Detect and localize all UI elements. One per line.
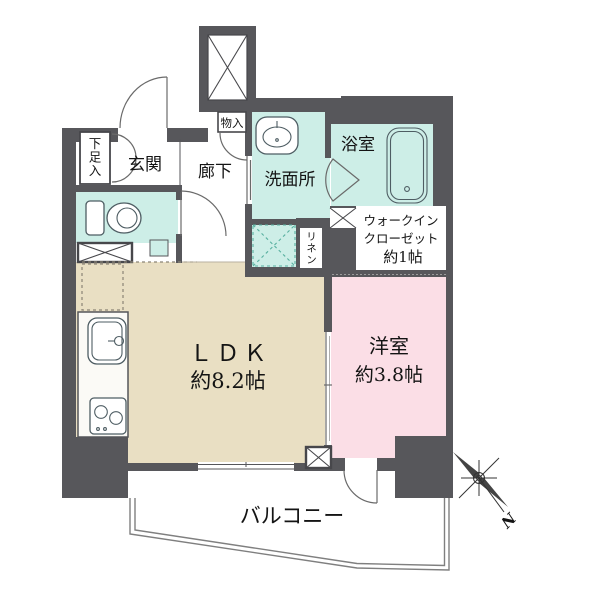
compass-spike-se	[479, 478, 508, 507]
bedroom-balcony-door-arc	[344, 470, 377, 503]
wall-segment	[76, 185, 182, 192]
linen-label: リネン	[305, 231, 317, 266]
wall-segment	[395, 436, 453, 498]
balcony-label: バルコニー	[240, 504, 345, 528]
ldk-size-label: 約8.2帖	[190, 369, 265, 393]
wall-segment	[341, 96, 453, 124]
wall-segment	[199, 34, 208, 100]
bathroom-label: 浴室	[341, 135, 375, 155]
wall-segment	[199, 26, 256, 35]
toilet-bowl	[107, 203, 141, 233]
shoe-cabinet-label: 下足入	[87, 137, 102, 178]
toilet-tank	[86, 201, 104, 235]
toilet-cabinet	[150, 240, 168, 256]
ldk-label: ＬＤＫ	[190, 341, 271, 367]
wall-segment	[433, 124, 453, 208]
washroom-label: 洗面所	[265, 170, 316, 190]
compass-north-arrow	[479, 478, 504, 512]
bedroom-label: 洋室	[369, 334, 409, 358]
wall-segment	[128, 463, 198, 471]
compass-north-label: N	[496, 508, 520, 532]
wall-segment	[324, 277, 332, 332]
wall-segment	[325, 124, 331, 158]
wall-segment	[167, 128, 208, 142]
wall-segment	[247, 34, 256, 100]
storage-door-arc	[220, 133, 247, 160]
entrance-label: 玄関	[128, 155, 162, 175]
floor-plan: N 玄関 廊下 下足入 物入 洗面所 浴室 リネン ウォークイン クローゼット …	[0, 0, 600, 600]
wall-segment	[176, 234, 182, 263]
wall-segment	[62, 128, 76, 438]
wall-segment	[332, 458, 345, 471]
compass-rose: N	[453, 452, 520, 532]
wic-label-2: クローゼット	[363, 231, 438, 246]
wall-segment	[377, 458, 395, 471]
wall-segment	[325, 112, 341, 124]
toilet-door-arc	[181, 191, 226, 236]
entrance-door-arc	[120, 77, 167, 128]
floor-plan-svg: N 玄関 廊下 下足入 物入 洗面所 浴室 リネン ウォークイン クローゼット …	[0, 0, 600, 600]
bedroom-size-label: 約3.8帖	[355, 364, 423, 386]
stove	[90, 398, 126, 434]
wic-label-3: 約1帖	[383, 248, 423, 266]
wall-segment	[62, 437, 128, 498]
wall-segment	[245, 219, 296, 225]
hallway-label: 廊下	[198, 162, 232, 182]
wic-label-1: ウォークイン	[363, 213, 438, 228]
storage-label: 物入	[221, 116, 244, 130]
